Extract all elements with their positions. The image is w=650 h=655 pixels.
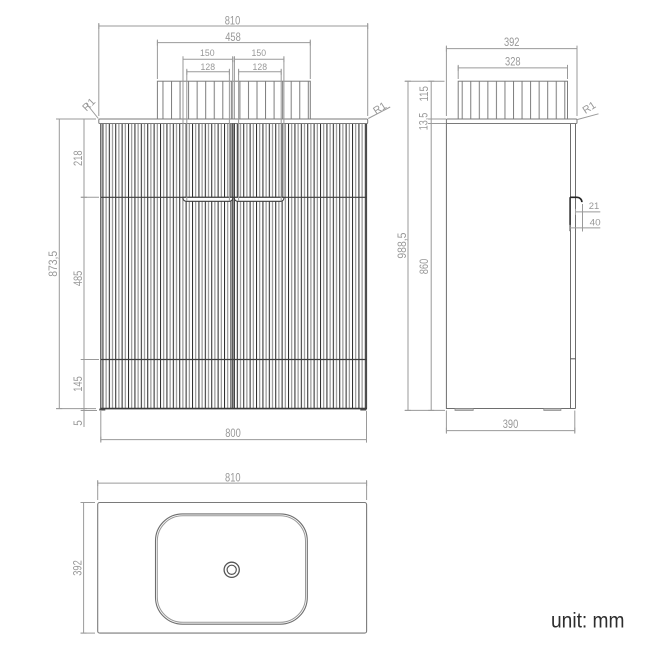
svg-text:390: 390 (503, 417, 519, 431)
svg-text:13,5: 13,5 (416, 113, 430, 131)
svg-text:810: 810 (225, 470, 241, 484)
svg-text:392: 392 (504, 35, 520, 49)
svg-text:150: 150 (200, 48, 215, 58)
svg-text:328: 328 (505, 54, 521, 68)
svg-text:145: 145 (71, 376, 85, 392)
svg-text:810: 810 (225, 13, 241, 27)
svg-text:988,5: 988,5 (395, 232, 409, 258)
svg-text:860: 860 (417, 259, 431, 275)
svg-text:873,5: 873,5 (46, 251, 60, 277)
svg-text:485: 485 (71, 270, 85, 286)
svg-text:458: 458 (225, 30, 241, 44)
svg-text:128: 128 (253, 62, 268, 72)
svg-text:21: 21 (589, 201, 600, 212)
svg-text:150: 150 (252, 48, 267, 58)
svg-text:115: 115 (417, 86, 431, 102)
svg-text:40: 40 (590, 218, 601, 229)
svg-text:128: 128 (201, 62, 216, 72)
svg-text:392: 392 (71, 560, 85, 576)
svg-text:5: 5 (71, 420, 85, 426)
svg-text:218: 218 (71, 150, 85, 166)
svg-text:unit: mm: unit: mm (551, 609, 625, 633)
svg-text:800: 800 (225, 426, 241, 440)
